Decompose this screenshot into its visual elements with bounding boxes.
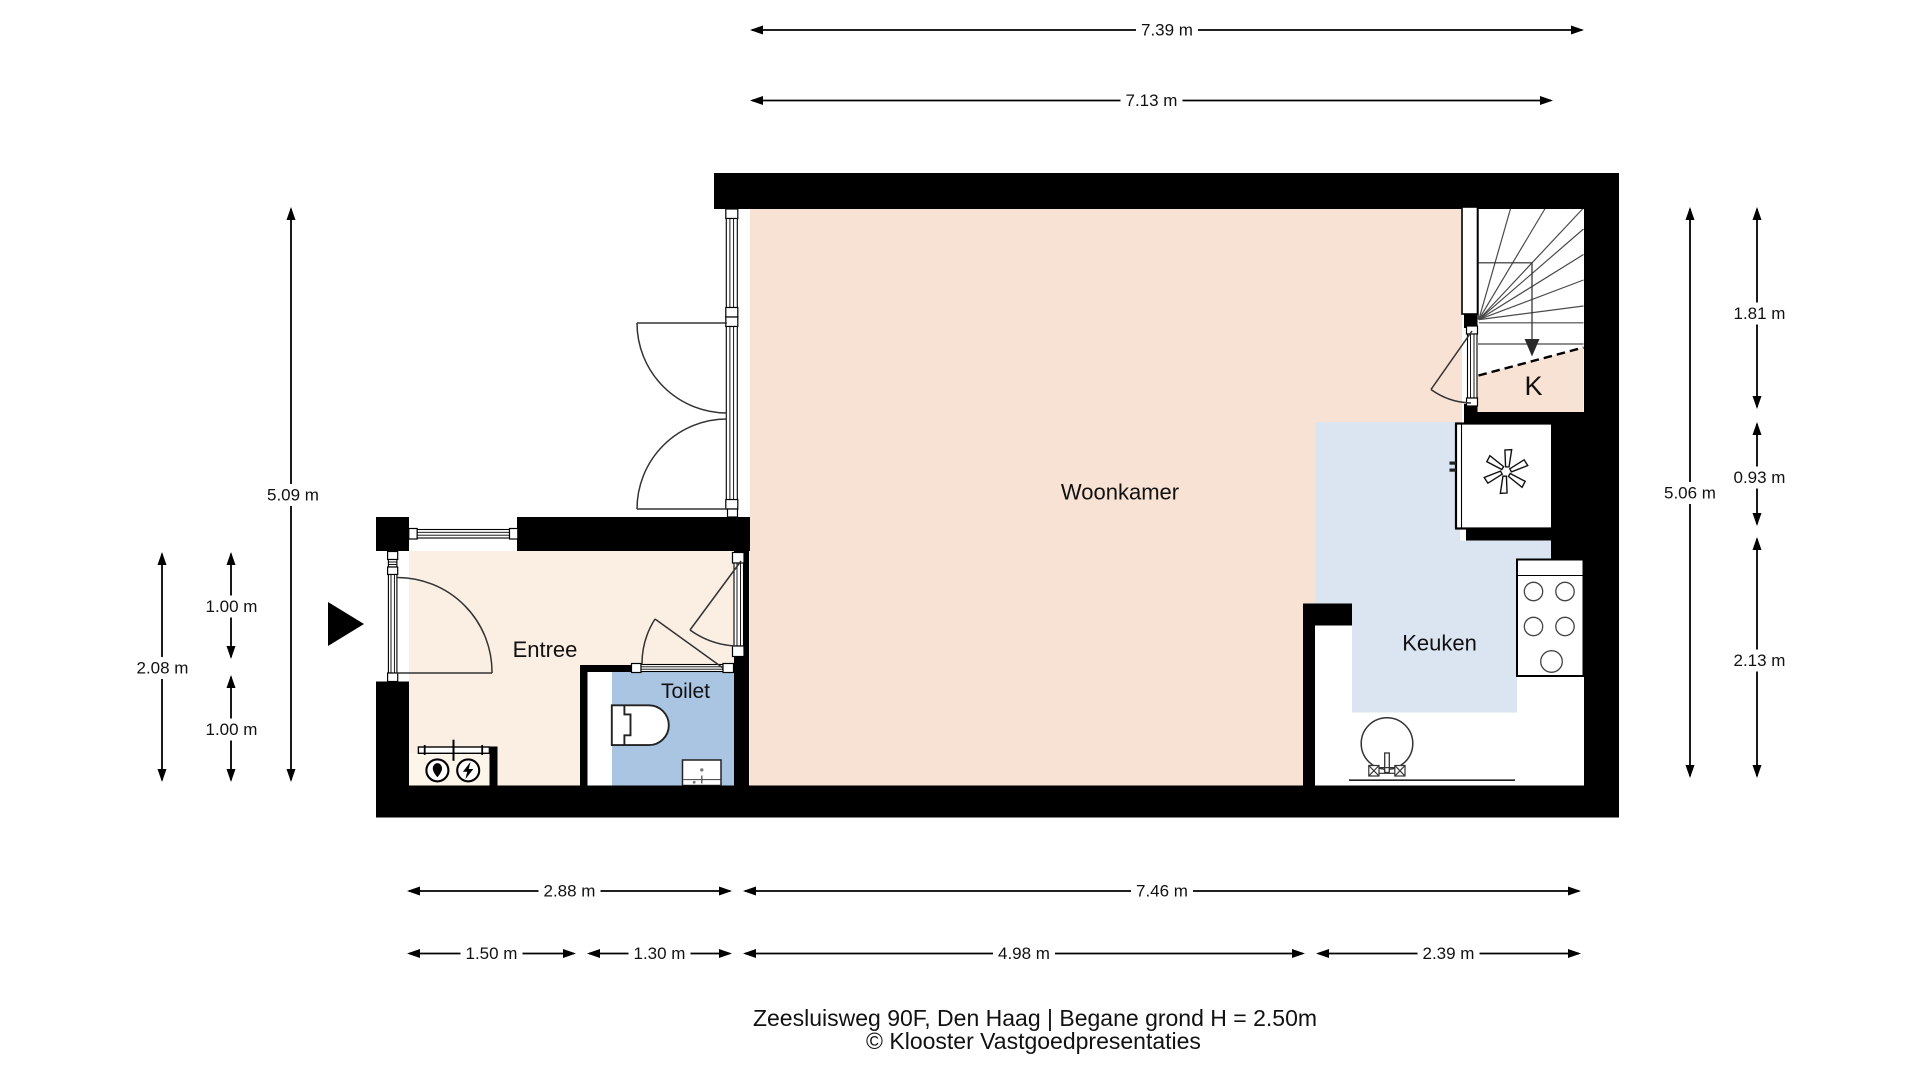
svg-text:1.81 m: 1.81 m — [1734, 304, 1786, 323]
svg-text:0.93 m: 0.93 m — [1734, 468, 1786, 487]
svg-text:Woonkamer: Woonkamer — [1061, 480, 1179, 505]
svg-text:5.09 m: 5.09 m — [267, 486, 319, 505]
svg-text:1.00 m: 1.00 m — [206, 720, 258, 739]
svg-text:7.13 m: 7.13 m — [1126, 91, 1178, 110]
svg-text:7.39 m: 7.39 m — [1141, 21, 1193, 40]
svg-text:Toilet: Toilet — [661, 680, 710, 703]
svg-text:2.08 m: 2.08 m — [137, 659, 189, 678]
svg-text:1.50 m: 1.50 m — [466, 944, 518, 963]
svg-text:1.00 m: 1.00 m — [206, 597, 258, 616]
svg-text:© Klooster Vastgoedpresentatie: © Klooster Vastgoedpresentaties — [866, 1028, 1201, 1054]
svg-text:7.46 m: 7.46 m — [1136, 882, 1188, 901]
svg-text:Keuken: Keuken — [1402, 631, 1477, 656]
svg-text:5.06 m: 5.06 m — [1664, 484, 1716, 503]
svg-text:4.98 m: 4.98 m — [998, 944, 1050, 963]
svg-text:K: K — [1524, 371, 1542, 401]
svg-text:2.88 m: 2.88 m — [544, 882, 596, 901]
svg-text:1.30 m: 1.30 m — [634, 944, 686, 963]
svg-text:2.13 m: 2.13 m — [1734, 651, 1786, 670]
svg-text:2.39 m: 2.39 m — [1423, 944, 1475, 963]
svg-text:Entree: Entree — [513, 637, 578, 662]
